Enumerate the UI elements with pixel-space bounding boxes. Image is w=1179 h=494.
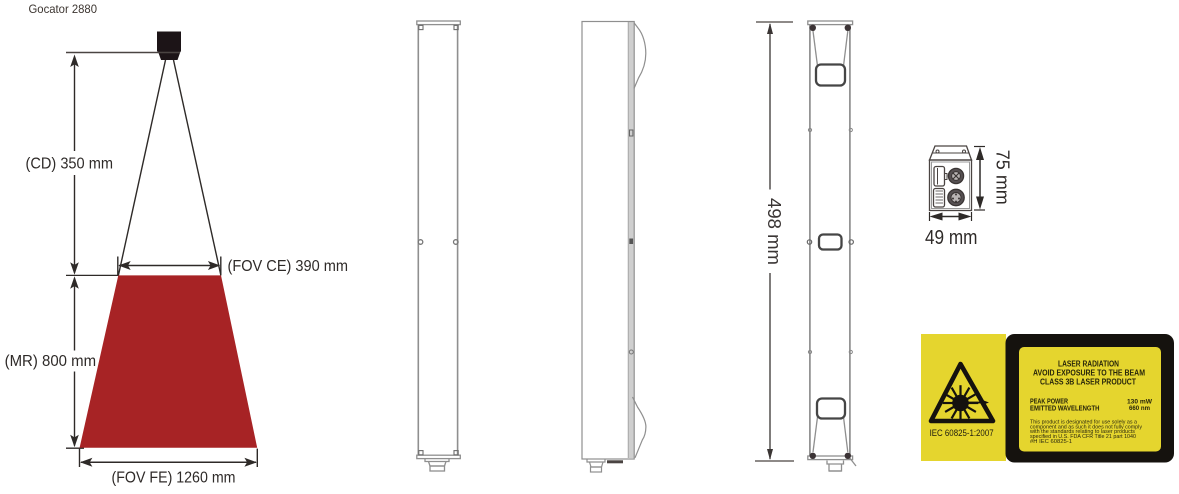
svg-text:IEC 60825-1:2007: IEC 60825-1:2007 — [930, 428, 994, 439]
svg-text:#H IEC 60825-1: #H IEC 60825-1 — [1030, 439, 1072, 445]
svg-text:EMITTED WAVELENGTH: EMITTED WAVELENGTH — [1030, 403, 1100, 412]
svg-text:Gocator 2880: Gocator 2880 — [29, 2, 98, 16]
svg-text:(FOV FE) 1260 mm: (FOV FE) 1260 mm — [112, 470, 236, 487]
svg-text:49 mm: 49 mm — [925, 227, 978, 249]
svg-text:CLASS 3B LASER PRODUCT: CLASS 3B LASER PRODUCT — [1040, 377, 1137, 387]
svg-text:498 mm: 498 mm — [764, 198, 785, 265]
svg-text:(FOV CE) 390 mm: (FOV CE) 390 mm — [228, 258, 349, 275]
svg-text:(CD) 350 mm: (CD) 350 mm — [26, 156, 114, 173]
svg-text:(MR) 800 mm: (MR) 800 mm — [5, 353, 97, 370]
svg-text:660 nm: 660 nm — [1129, 405, 1150, 412]
svg-text:75 mm: 75 mm — [992, 150, 1012, 205]
